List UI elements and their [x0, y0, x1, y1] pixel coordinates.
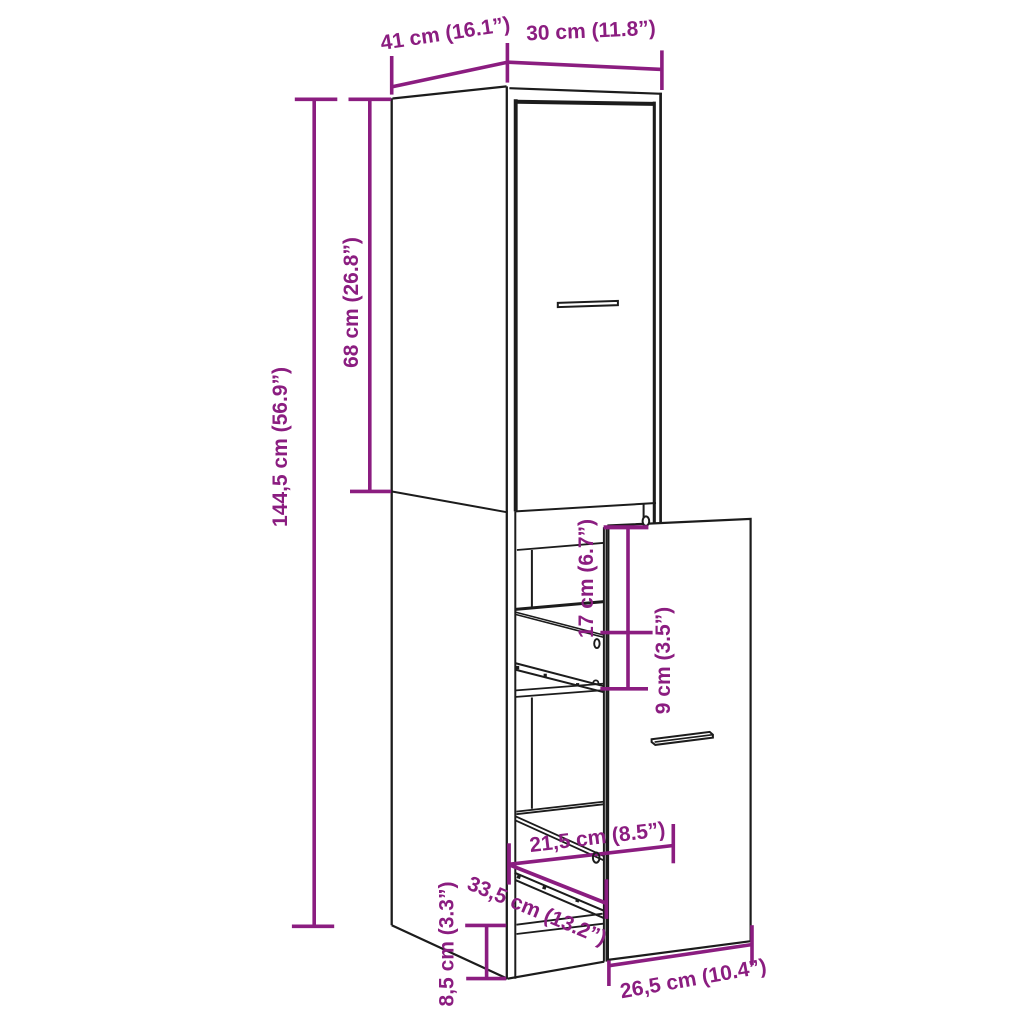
svg-text:9 cm (3.5”): 9 cm (3.5”) [652, 607, 675, 714]
svg-text:8,5 cm (3.3”): 8,5 cm (3.3”) [436, 882, 459, 1007]
svg-text:144,5 cm (56.9”): 144,5 cm (56.9”) [269, 367, 292, 527]
svg-text:17 cm (6.7”): 17 cm (6.7”) [575, 519, 598, 638]
svg-text:68 cm (26.8”): 68 cm (26.8”) [340, 237, 363, 368]
